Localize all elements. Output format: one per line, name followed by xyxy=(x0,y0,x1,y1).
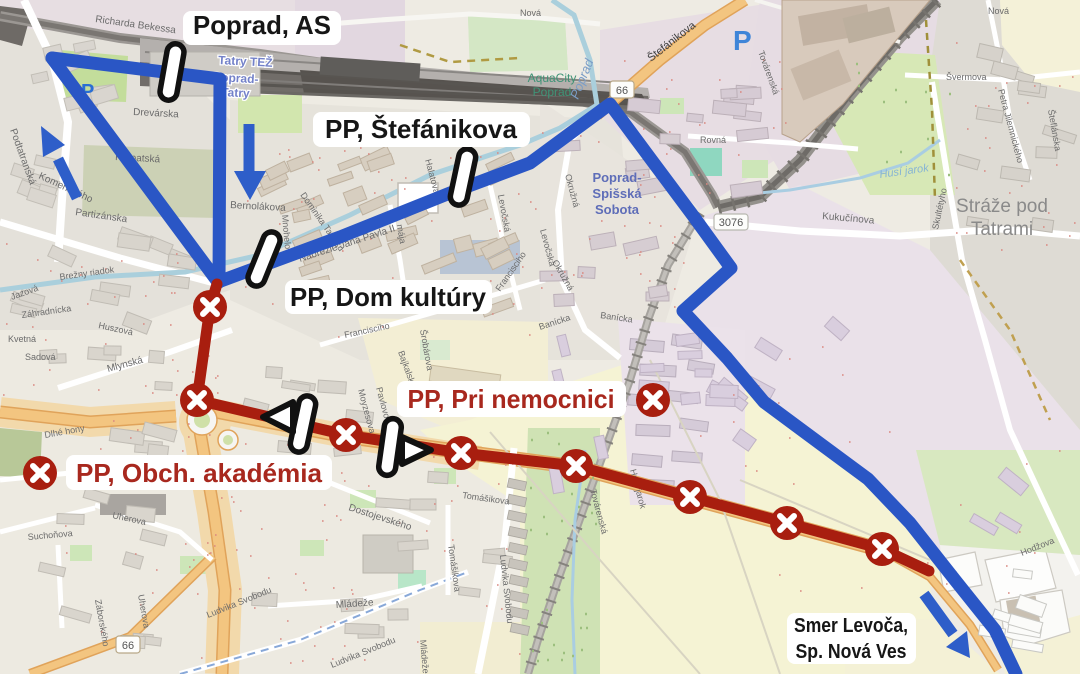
svg-text:Nová: Nová xyxy=(520,8,541,18)
svg-text:Spišská: Spišská xyxy=(592,186,642,201)
svg-text:Sadová: Sadová xyxy=(25,352,56,362)
svg-text:PP, Obch. akadémia: PP, Obch. akadémia xyxy=(76,458,323,488)
svg-text:PP, Štefánikova: PP, Štefánikova xyxy=(325,114,518,144)
svg-text:Smer Levoča,: Smer Levoča, xyxy=(794,615,908,637)
svg-text:Nová: Nová xyxy=(988,6,1009,16)
svg-text:3076: 3076 xyxy=(719,217,743,229)
svg-text:Sp. Nová Ves: Sp. Nová Ves xyxy=(796,641,907,663)
svg-text:66: 66 xyxy=(616,85,628,97)
svg-text:Poprad, AS: Poprad, AS xyxy=(193,10,331,40)
svg-text:Rovná: Rovná xyxy=(700,135,726,145)
svg-text:Tatry TEŽ: Tatry TEŽ xyxy=(218,52,273,70)
svg-text:P: P xyxy=(733,25,752,56)
svg-text:AquaCity: AquaCity xyxy=(528,71,577,85)
svg-text:Švermova: Švermova xyxy=(946,72,987,82)
svg-text:PP, Pri nemocnici: PP, Pri nemocnici xyxy=(408,384,615,414)
svg-text:Kvetná: Kvetná xyxy=(8,334,36,344)
svg-text:PP, Dom kultúry: PP, Dom kultúry xyxy=(290,282,487,312)
svg-text:Poprad: Poprad xyxy=(533,85,572,99)
svg-text:66: 66 xyxy=(122,640,134,652)
svg-text:Poprad-: Poprad- xyxy=(592,170,641,185)
svg-text:Stráže pod: Stráže pod xyxy=(956,196,1048,217)
svg-text:Tatrami: Tatrami xyxy=(971,219,1033,240)
svg-text:Sobota: Sobota xyxy=(595,202,640,217)
